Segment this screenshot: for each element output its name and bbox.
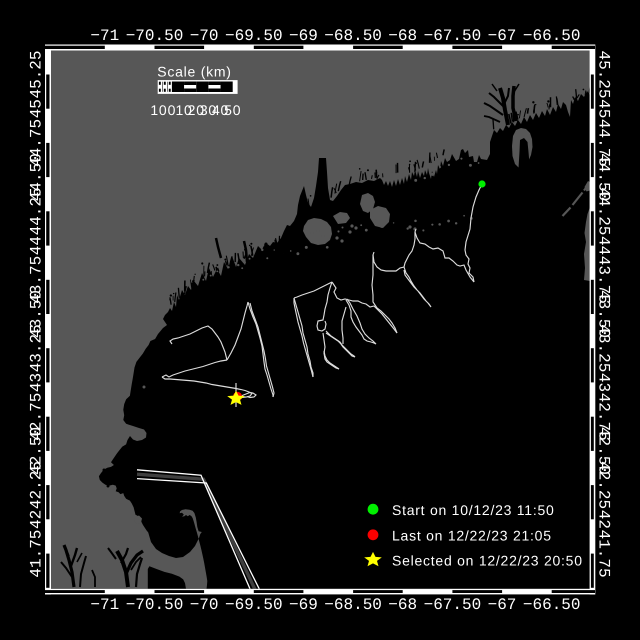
svg-text:50: 50 (224, 102, 241, 118)
svg-text:42.25: 42.25 (595, 461, 613, 509)
svg-text:−69.50: −69.50 (225, 27, 283, 45)
svg-text:−70: −70 (190, 596, 219, 614)
svg-text:−69: −69 (289, 27, 318, 45)
svg-text:43.25: 43.25 (28, 324, 46, 372)
svg-text:−67: −67 (488, 27, 517, 45)
svg-text:45: 45 (28, 99, 46, 118)
svg-text:−68: −68 (388, 27, 417, 45)
svg-text:44: 44 (595, 236, 613, 255)
svg-text:−69: −69 (289, 596, 318, 614)
svg-text:−68.50: −68.50 (324, 596, 382, 614)
svg-text:−70.50: −70.50 (126, 596, 184, 614)
svg-text:−71: −71 (90, 596, 119, 614)
svg-text:41.75: 41.75 (28, 530, 46, 578)
svg-text:45.25: 45.25 (28, 50, 46, 98)
svg-text:45: 45 (595, 99, 613, 118)
svg-text:−66.50: −66.50 (523, 596, 581, 614)
svg-text:−67.50: −67.50 (424, 27, 482, 45)
svg-text:41.75: 41.75 (595, 530, 613, 578)
svg-text:Scale (km): Scale (km) (157, 63, 231, 79)
svg-text:Start on 10/12/23 11:50: Start on 10/12/23 11:50 (392, 502, 555, 518)
svg-text:−68.50: −68.50 (324, 27, 382, 45)
svg-text:−70: −70 (190, 27, 219, 45)
svg-text:42: 42 (595, 510, 613, 529)
svg-text:43: 43 (28, 373, 46, 392)
svg-text:44: 44 (28, 236, 46, 255)
svg-text:−67: −67 (488, 596, 517, 614)
svg-text:44.25: 44.25 (28, 187, 46, 235)
svg-text:43.25: 43.25 (595, 324, 613, 372)
svg-text:10: 10 (150, 102, 167, 118)
svg-text:42: 42 (28, 510, 46, 529)
svg-text:44.25: 44.25 (595, 187, 613, 235)
svg-text:42.25: 42.25 (28, 461, 46, 509)
svg-text:−69.50: −69.50 (225, 596, 283, 614)
svg-text:−68: −68 (388, 596, 417, 614)
svg-text:−66.50: −66.50 (523, 27, 581, 45)
svg-text:−71: −71 (90, 27, 119, 45)
svg-text:45.25: 45.25 (595, 50, 613, 98)
svg-text:Last on 12/22/23 21:05: Last on 12/22/23 21:05 (392, 527, 552, 543)
svg-text:43: 43 (595, 373, 613, 392)
svg-text:−70.50: −70.50 (126, 27, 184, 45)
svg-text:−67.50: −67.50 (424, 596, 482, 614)
svg-text:Selected on 12/22/23 20:50: Selected on 12/22/23 20:50 (392, 553, 583, 569)
